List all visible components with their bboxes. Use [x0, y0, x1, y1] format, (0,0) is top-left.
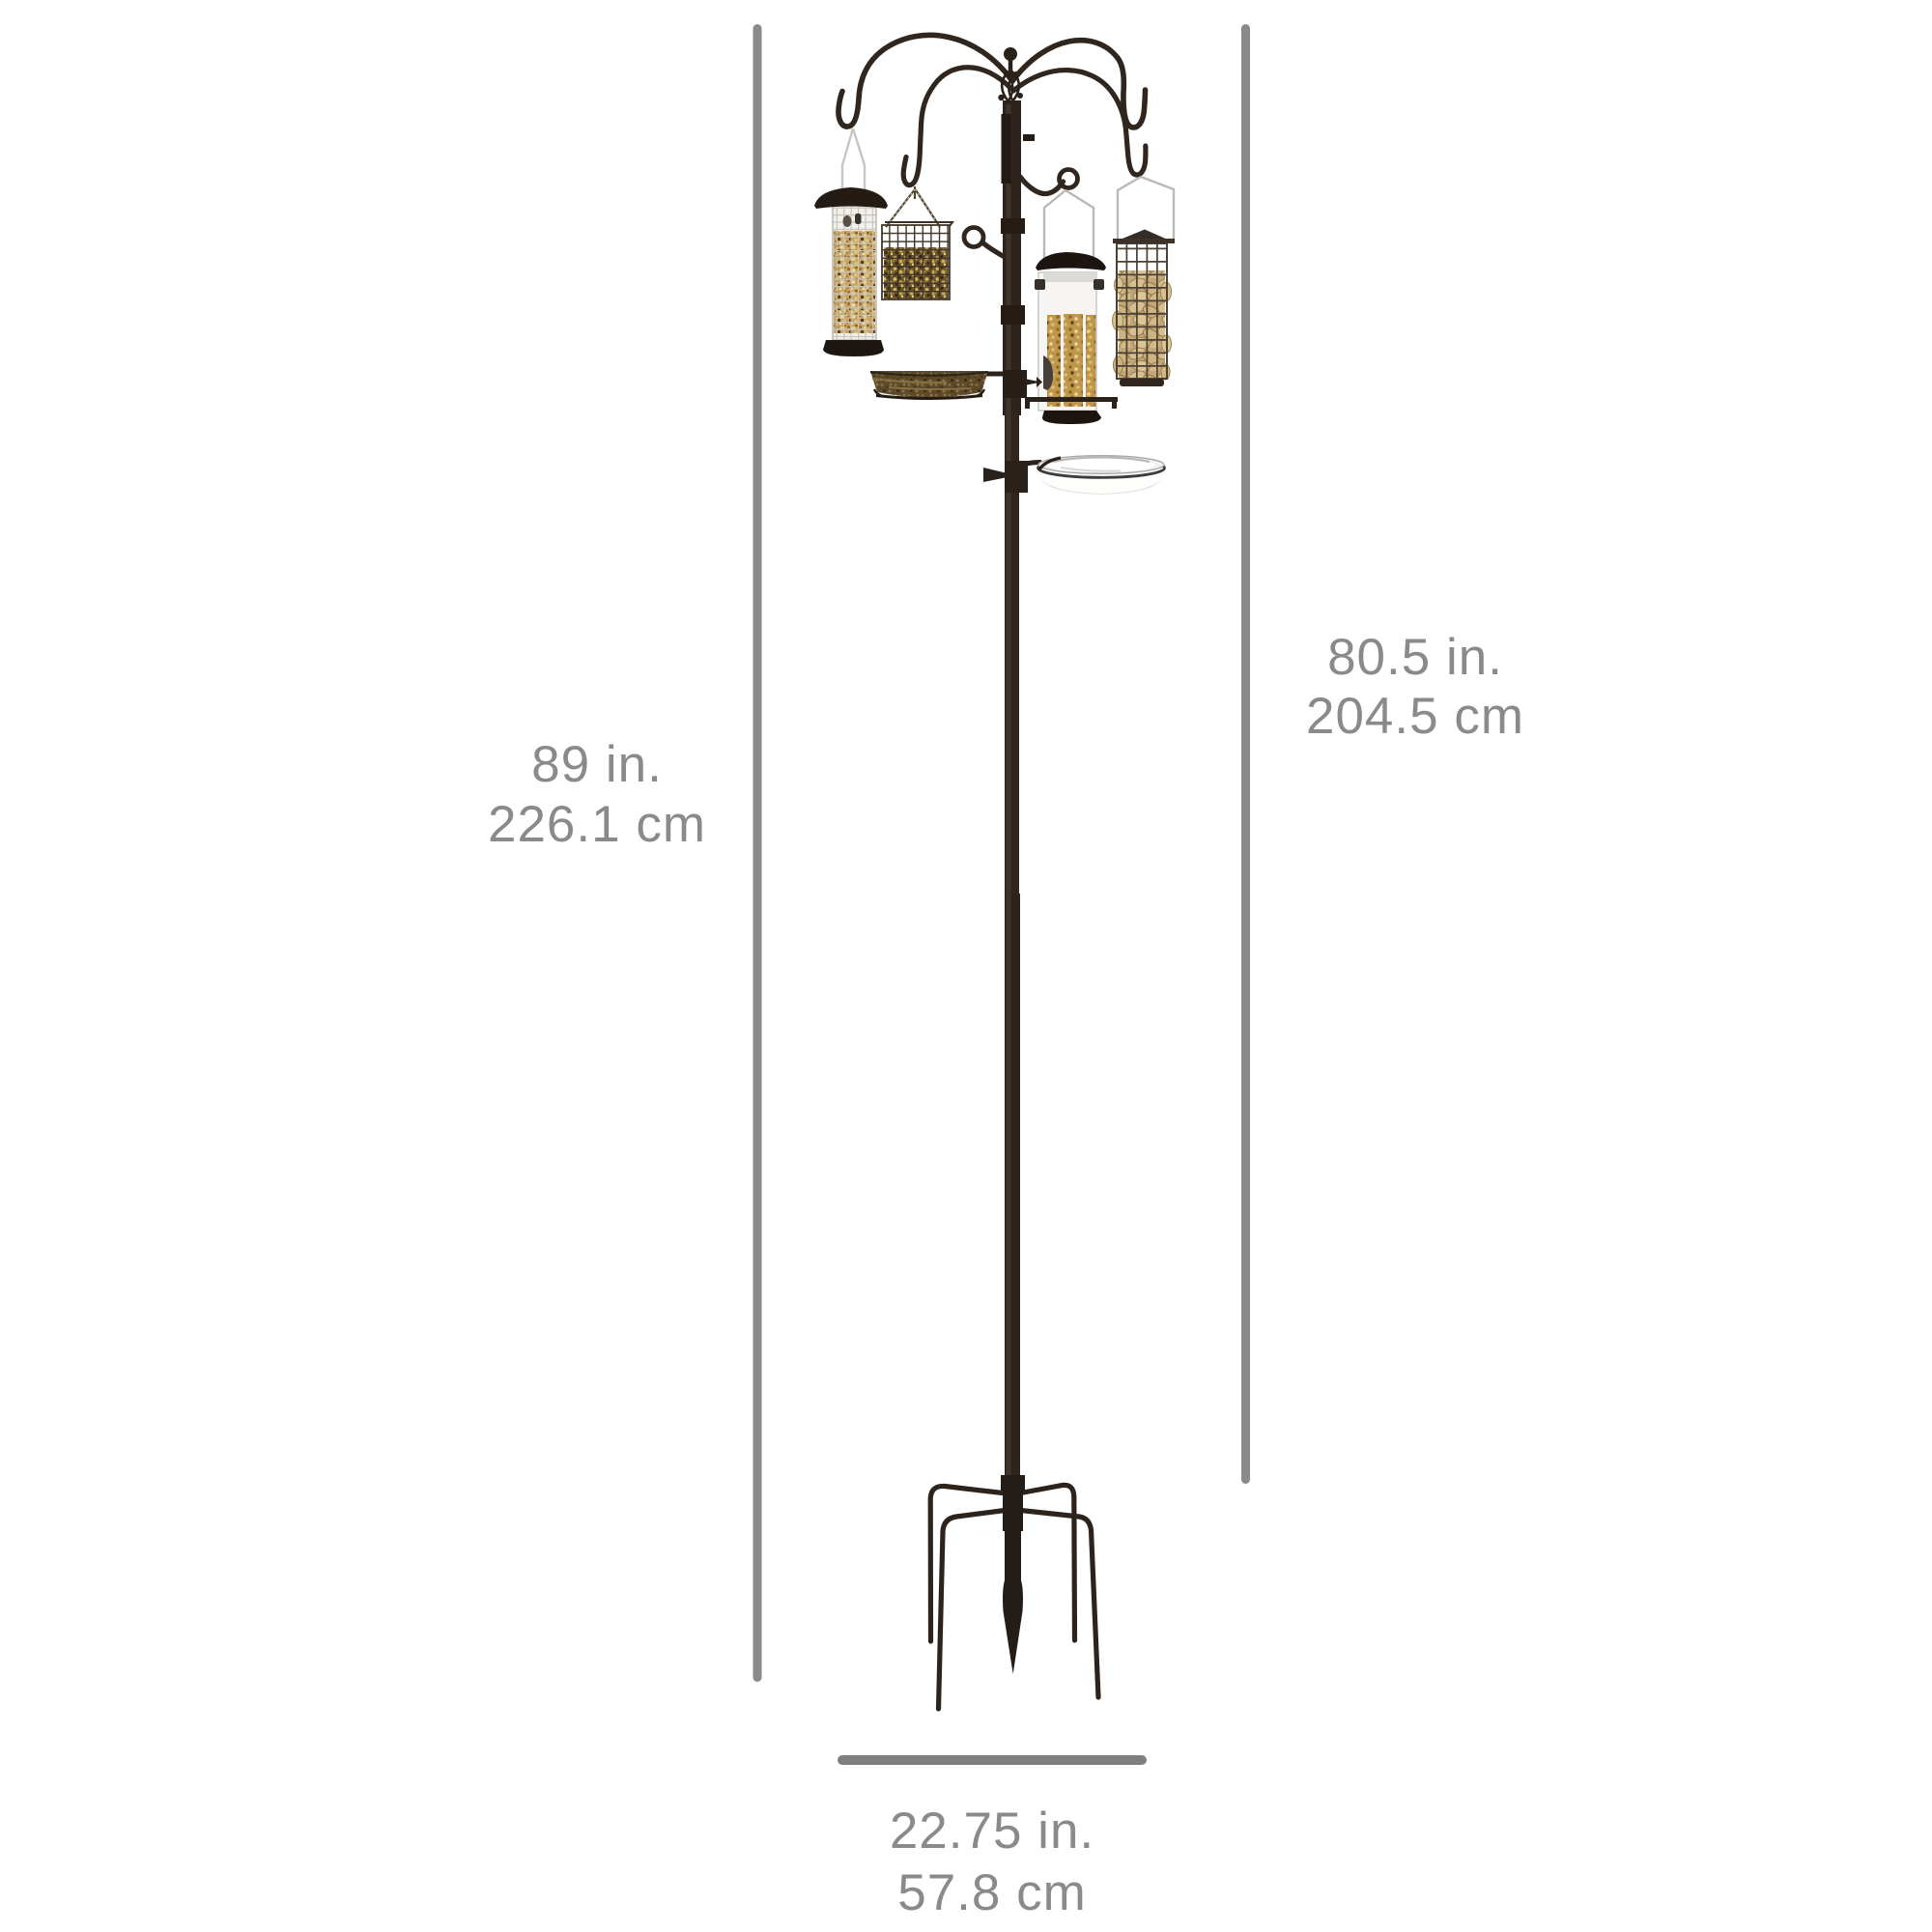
svg-text:89 in.: 89 in. — [531, 736, 663, 793]
svg-text:204.5 cm: 204.5 cm — [1306, 688, 1524, 745]
svg-text:80.5 in.: 80.5 in. — [1327, 629, 1503, 686]
svg-text:22.75 in.: 22.75 in. — [890, 1803, 1094, 1860]
svg-text:226.1 cm: 226.1 cm — [488, 796, 706, 853]
svg-text:57.8 cm: 57.8 cm — [897, 1864, 1087, 1921]
